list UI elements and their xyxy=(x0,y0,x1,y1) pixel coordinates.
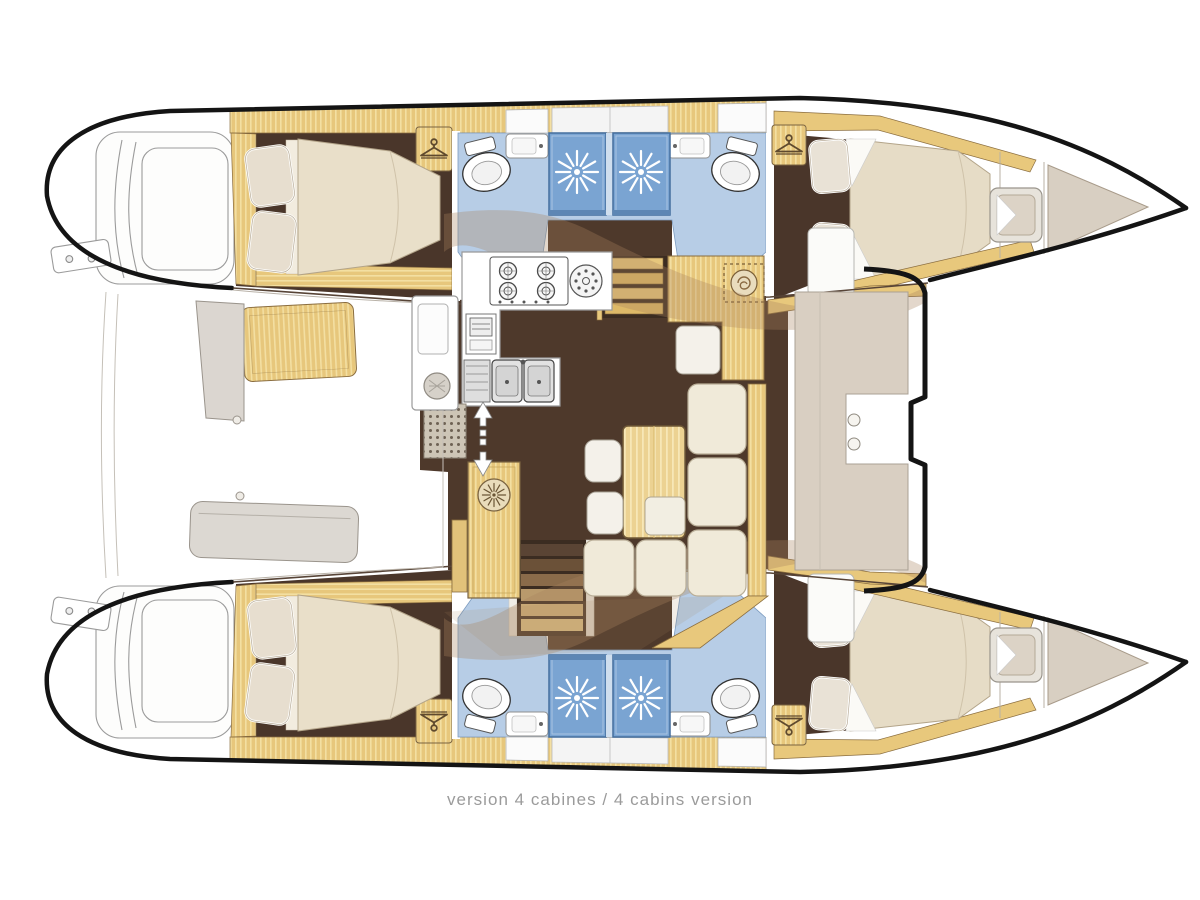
cup-holder xyxy=(848,438,860,450)
forward-cockpit xyxy=(795,292,908,570)
stool xyxy=(587,492,623,534)
c-shaped-seat xyxy=(795,292,908,570)
floor-mat xyxy=(424,404,466,458)
cockpit-counter xyxy=(412,296,458,410)
cockpit-stern-bench xyxy=(189,501,359,563)
cockpit-wood-bench xyxy=(241,302,357,382)
cockpit-side-bench xyxy=(196,301,244,421)
aft-cockpit xyxy=(102,290,459,580)
catamaran-deck-plan xyxy=(0,0,1200,900)
round-burner xyxy=(570,265,602,297)
chart-stool xyxy=(676,326,720,374)
stove xyxy=(490,257,568,305)
seat-cushion xyxy=(645,497,685,535)
cup-holder xyxy=(848,414,860,426)
oven xyxy=(466,314,496,354)
double-sink xyxy=(464,360,554,402)
deck-fitting xyxy=(236,492,244,500)
caption: version 4 cabines / 4 cabins version xyxy=(0,790,1200,810)
faucet xyxy=(521,360,526,365)
floor-plan: version 4 cabines / 4 cabins version xyxy=(0,0,1200,900)
stool xyxy=(585,440,621,482)
deck-fitting xyxy=(233,416,241,424)
